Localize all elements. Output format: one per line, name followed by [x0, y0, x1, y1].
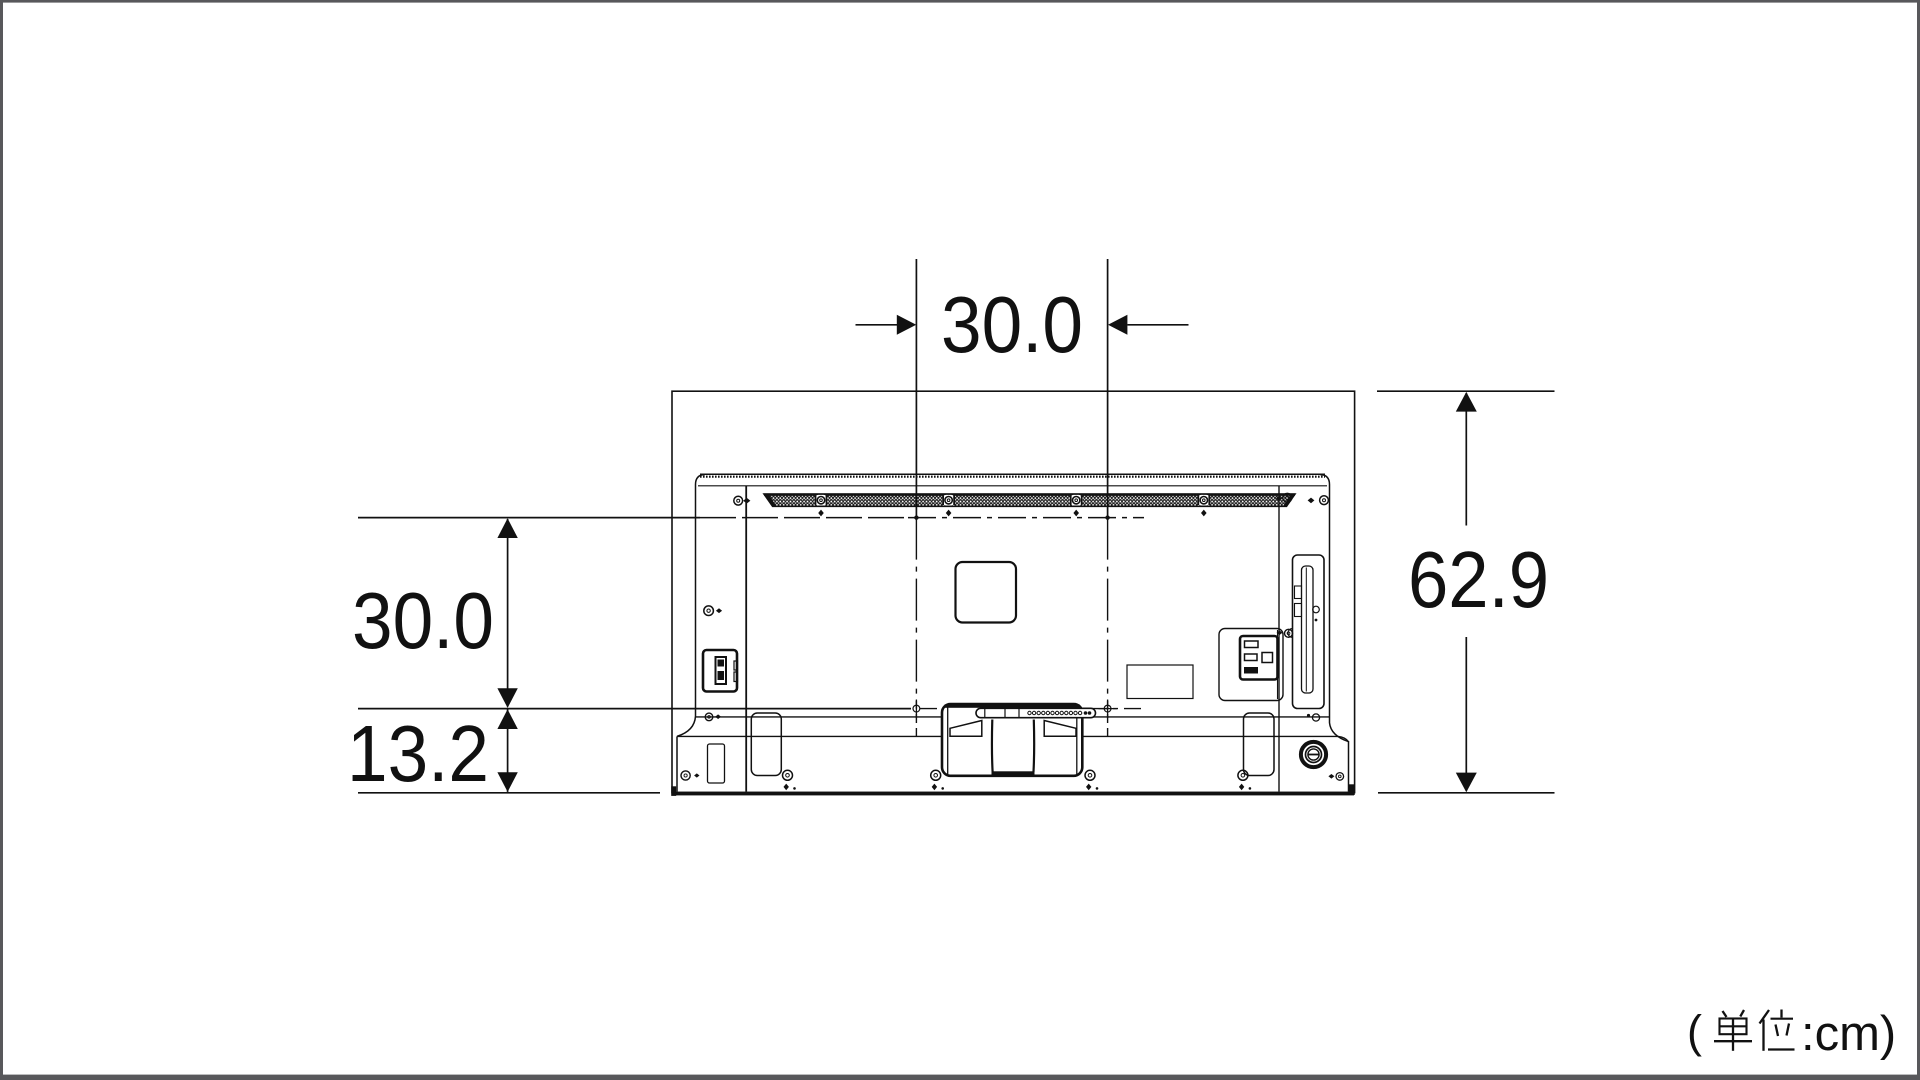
svg-text:(: ( — [1687, 1006, 1702, 1057]
svg-text:30.0: 30.0 — [352, 576, 494, 665]
svg-text:30.0: 30.0 — [941, 280, 1083, 369]
svg-text:13.2: 13.2 — [347, 709, 489, 798]
svg-text::cm): :cm) — [1801, 1007, 1896, 1061]
svg-text:62.9: 62.9 — [1408, 535, 1549, 624]
